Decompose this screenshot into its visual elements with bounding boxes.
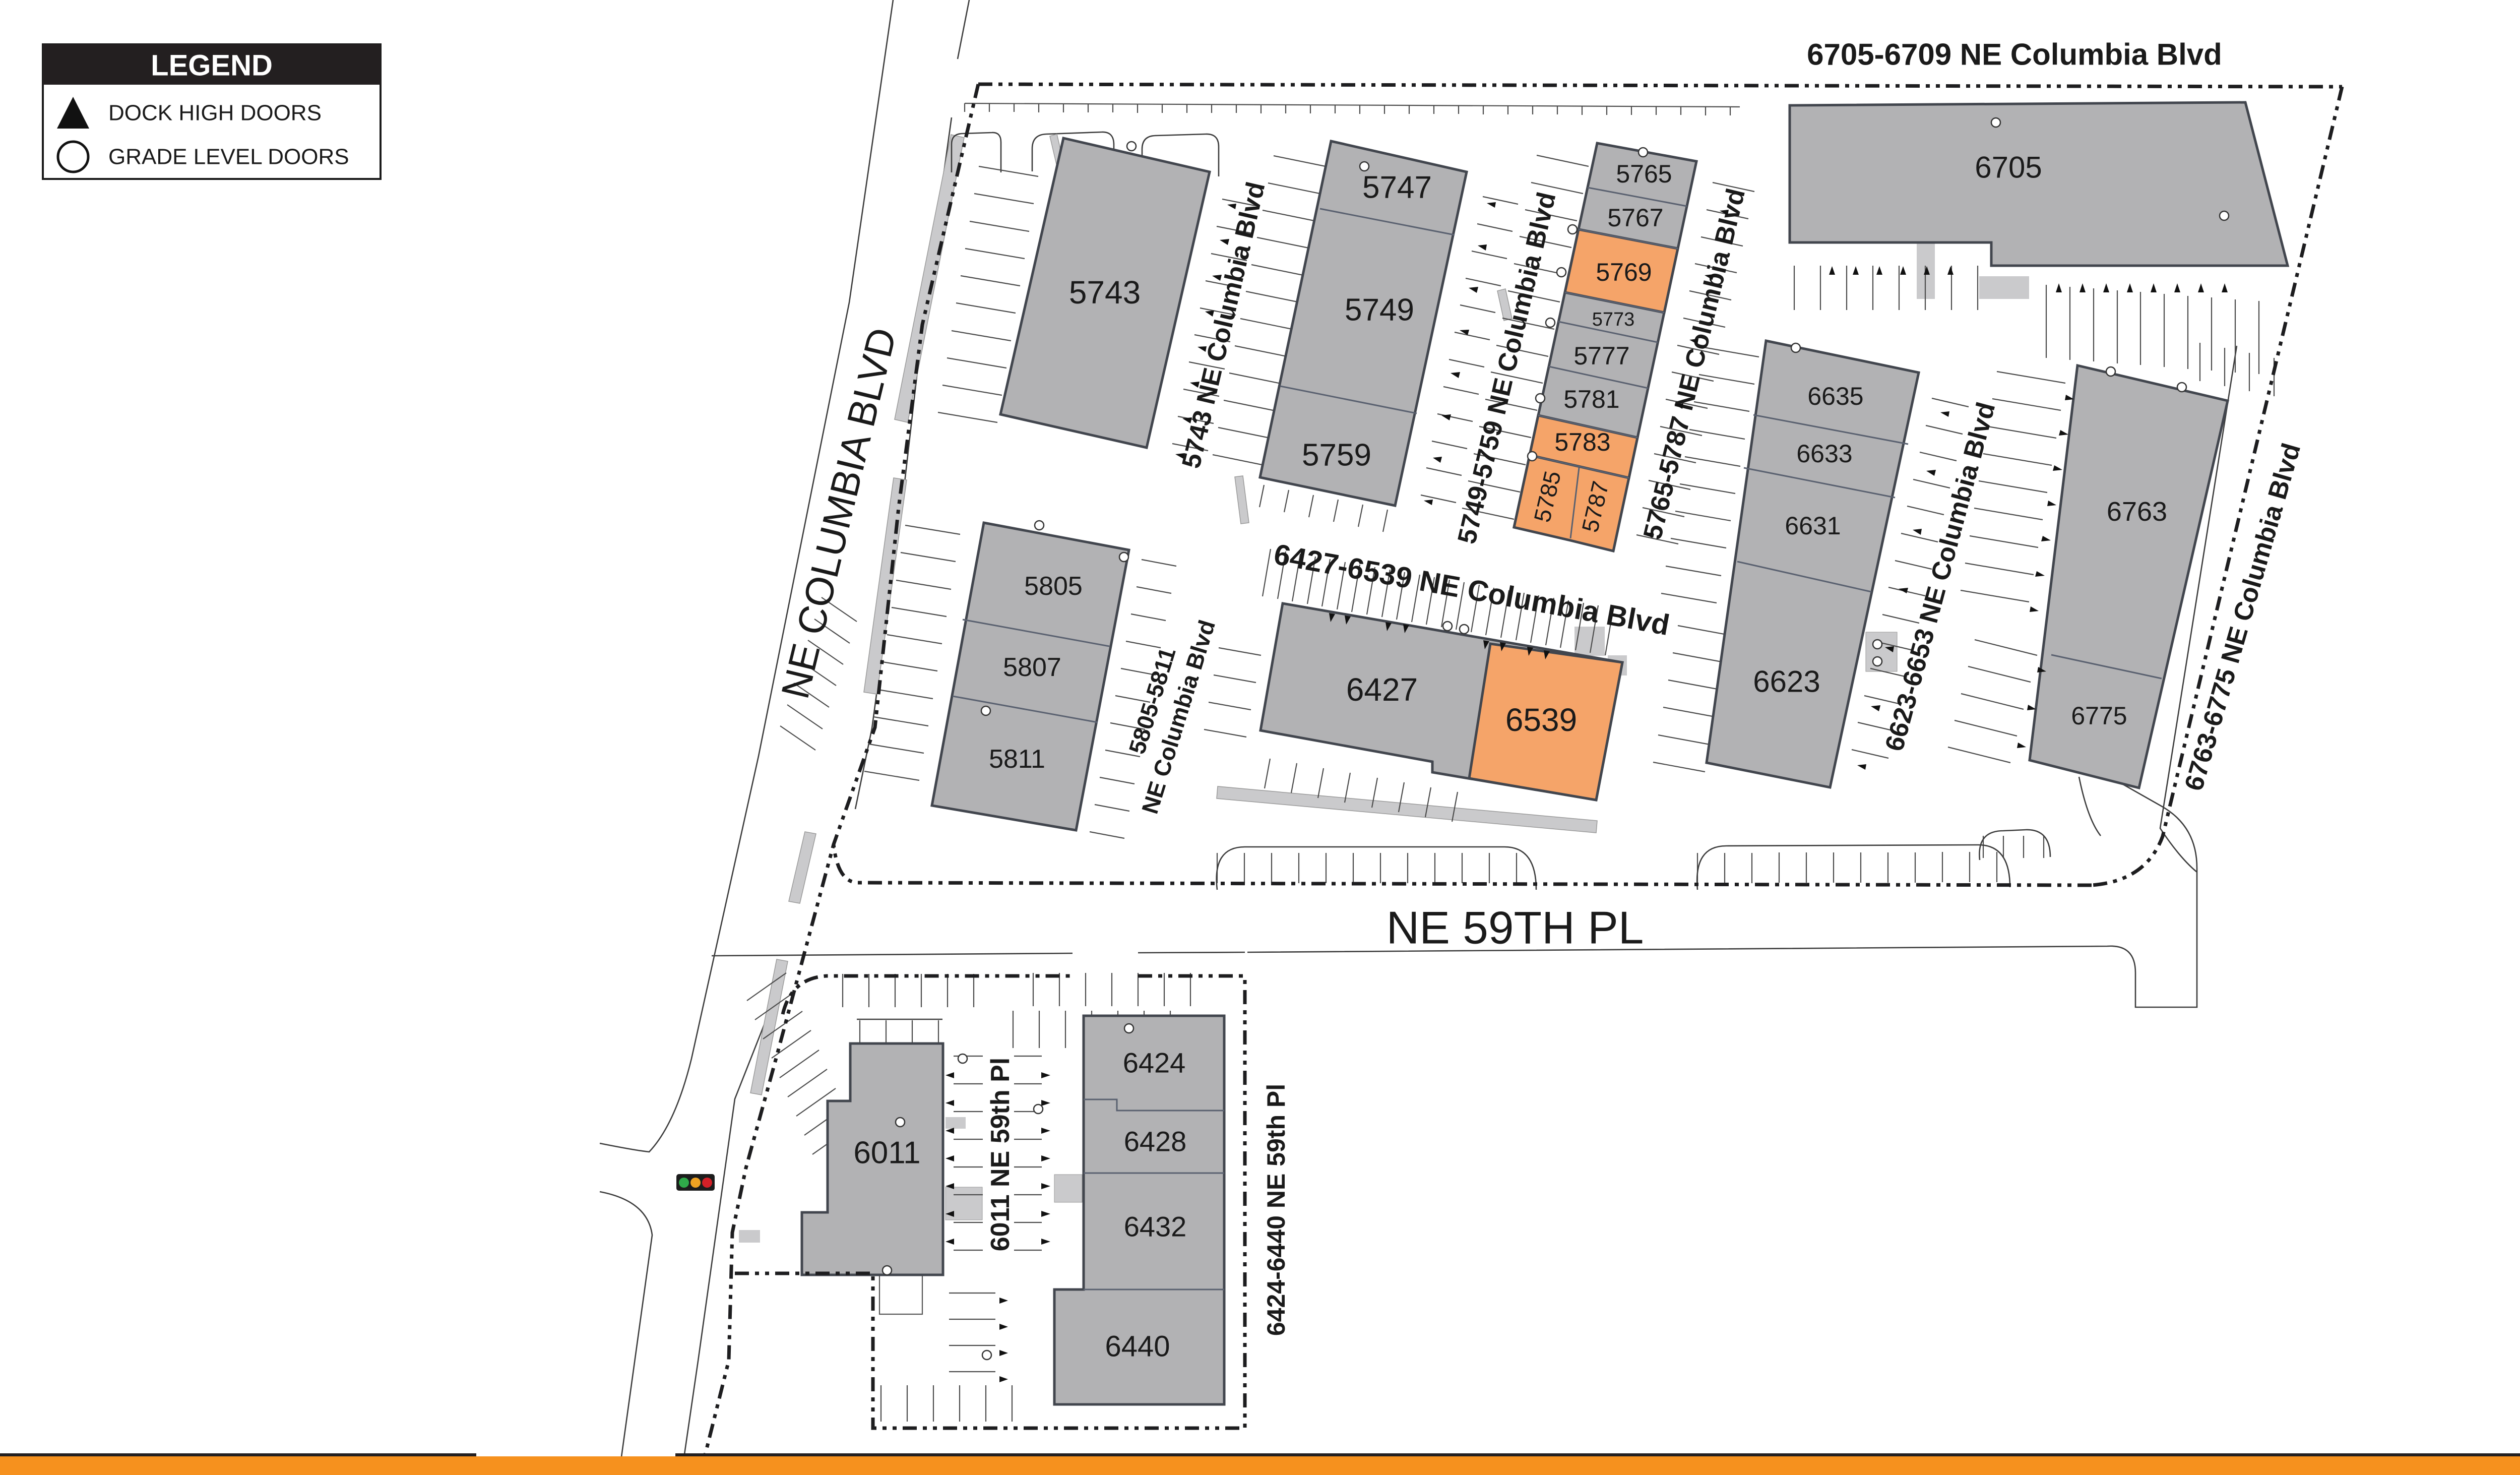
svg-text:6631: 6631 [1785, 512, 1841, 540]
svg-text:5747: 5747 [1362, 170, 1432, 205]
svg-text:6011 NE 59th Pl: 6011 NE 59th Pl [986, 1058, 1015, 1251]
svg-text:6424: 6424 [1123, 1047, 1186, 1079]
svg-text:6427: 6427 [1346, 671, 1418, 708]
svg-text:GRADE LEVEL DOORS: GRADE LEVEL DOORS [108, 145, 349, 169]
svg-text:6440: 6440 [1105, 1330, 1170, 1363]
svg-text:6428: 6428 [1124, 1126, 1187, 1157]
svg-text:5765: 5765 [1616, 160, 1672, 188]
svg-text:NE 59TH PL: NE 59TH PL [1387, 903, 1644, 954]
svg-text:5773: 5773 [1592, 309, 1635, 330]
svg-text:6432: 6432 [1124, 1211, 1187, 1243]
svg-text:6705-6709 NE Columbia Blvd: 6705-6709 NE Columbia Blvd [1807, 38, 2222, 72]
svg-text:6539: 6539 [1505, 702, 1577, 738]
svg-text:6705: 6705 [1975, 151, 2042, 185]
svg-text:5759: 5759 [1302, 438, 1371, 473]
svg-text:5783: 5783 [1554, 428, 1610, 456]
svg-text:LEGEND: LEGEND [151, 49, 273, 82]
svg-text:5777: 5777 [1573, 342, 1629, 370]
svg-text:6775: 6775 [2071, 702, 2127, 730]
svg-text:6623: 6623 [1753, 665, 1820, 699]
svg-text:5769: 5769 [1596, 258, 1652, 286]
svg-text:5805: 5805 [1024, 572, 1083, 601]
svg-text:6635: 6635 [1807, 382, 1863, 410]
svg-text:DOCK HIGH DOORS: DOCK HIGH DOORS [108, 101, 322, 126]
svg-text:6763: 6763 [2107, 497, 2167, 527]
svg-text:5807: 5807 [1003, 653, 1061, 682]
svg-text:5811: 5811 [989, 745, 1045, 774]
svg-text:5781: 5781 [1563, 385, 1619, 413]
svg-text:5743: 5743 [1069, 274, 1141, 311]
svg-text:6633: 6633 [1796, 440, 1852, 468]
svg-text:6011: 6011 [853, 1136, 920, 1171]
svg-text:6424-6440 NE 59th Pl: 6424-6440 NE 59th Pl [1262, 1084, 1290, 1336]
svg-text:5767: 5767 [1607, 204, 1663, 232]
svg-text:5749: 5749 [1345, 293, 1414, 328]
